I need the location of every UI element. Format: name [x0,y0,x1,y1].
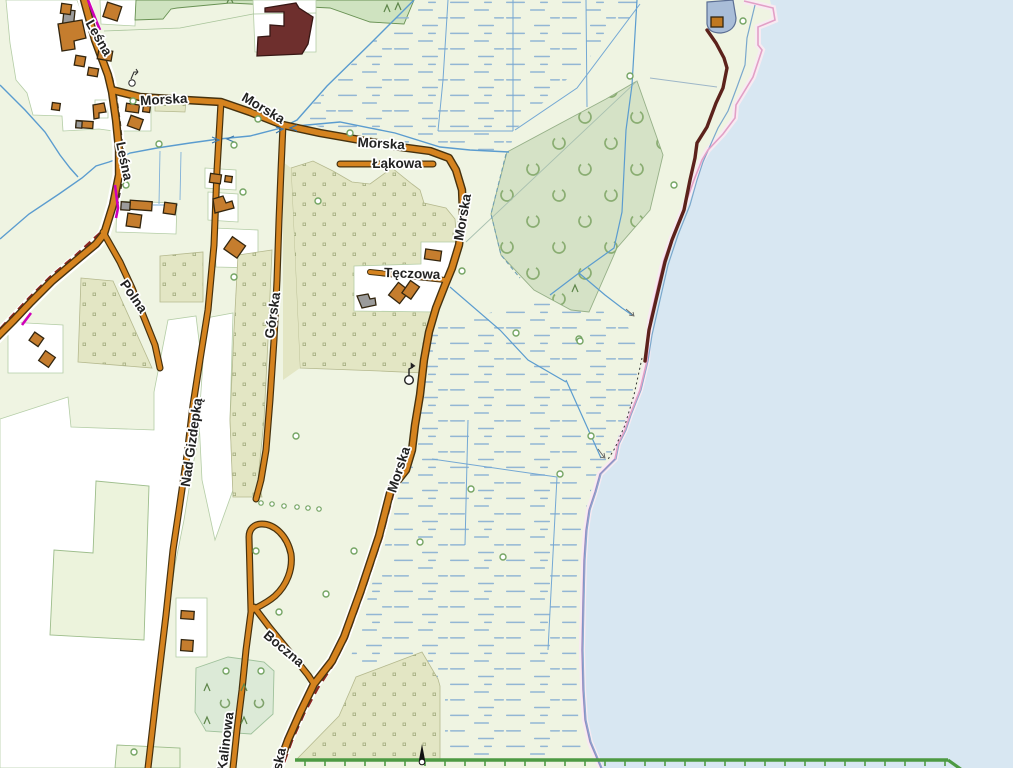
svg-text:Tęczowa: Tęczowa [384,265,441,282]
svg-text:Morska: Morska [357,135,405,152]
svg-text:Morska: Morska [140,91,188,108]
svg-text:Łąkowa: Łąkowa [372,156,422,171]
